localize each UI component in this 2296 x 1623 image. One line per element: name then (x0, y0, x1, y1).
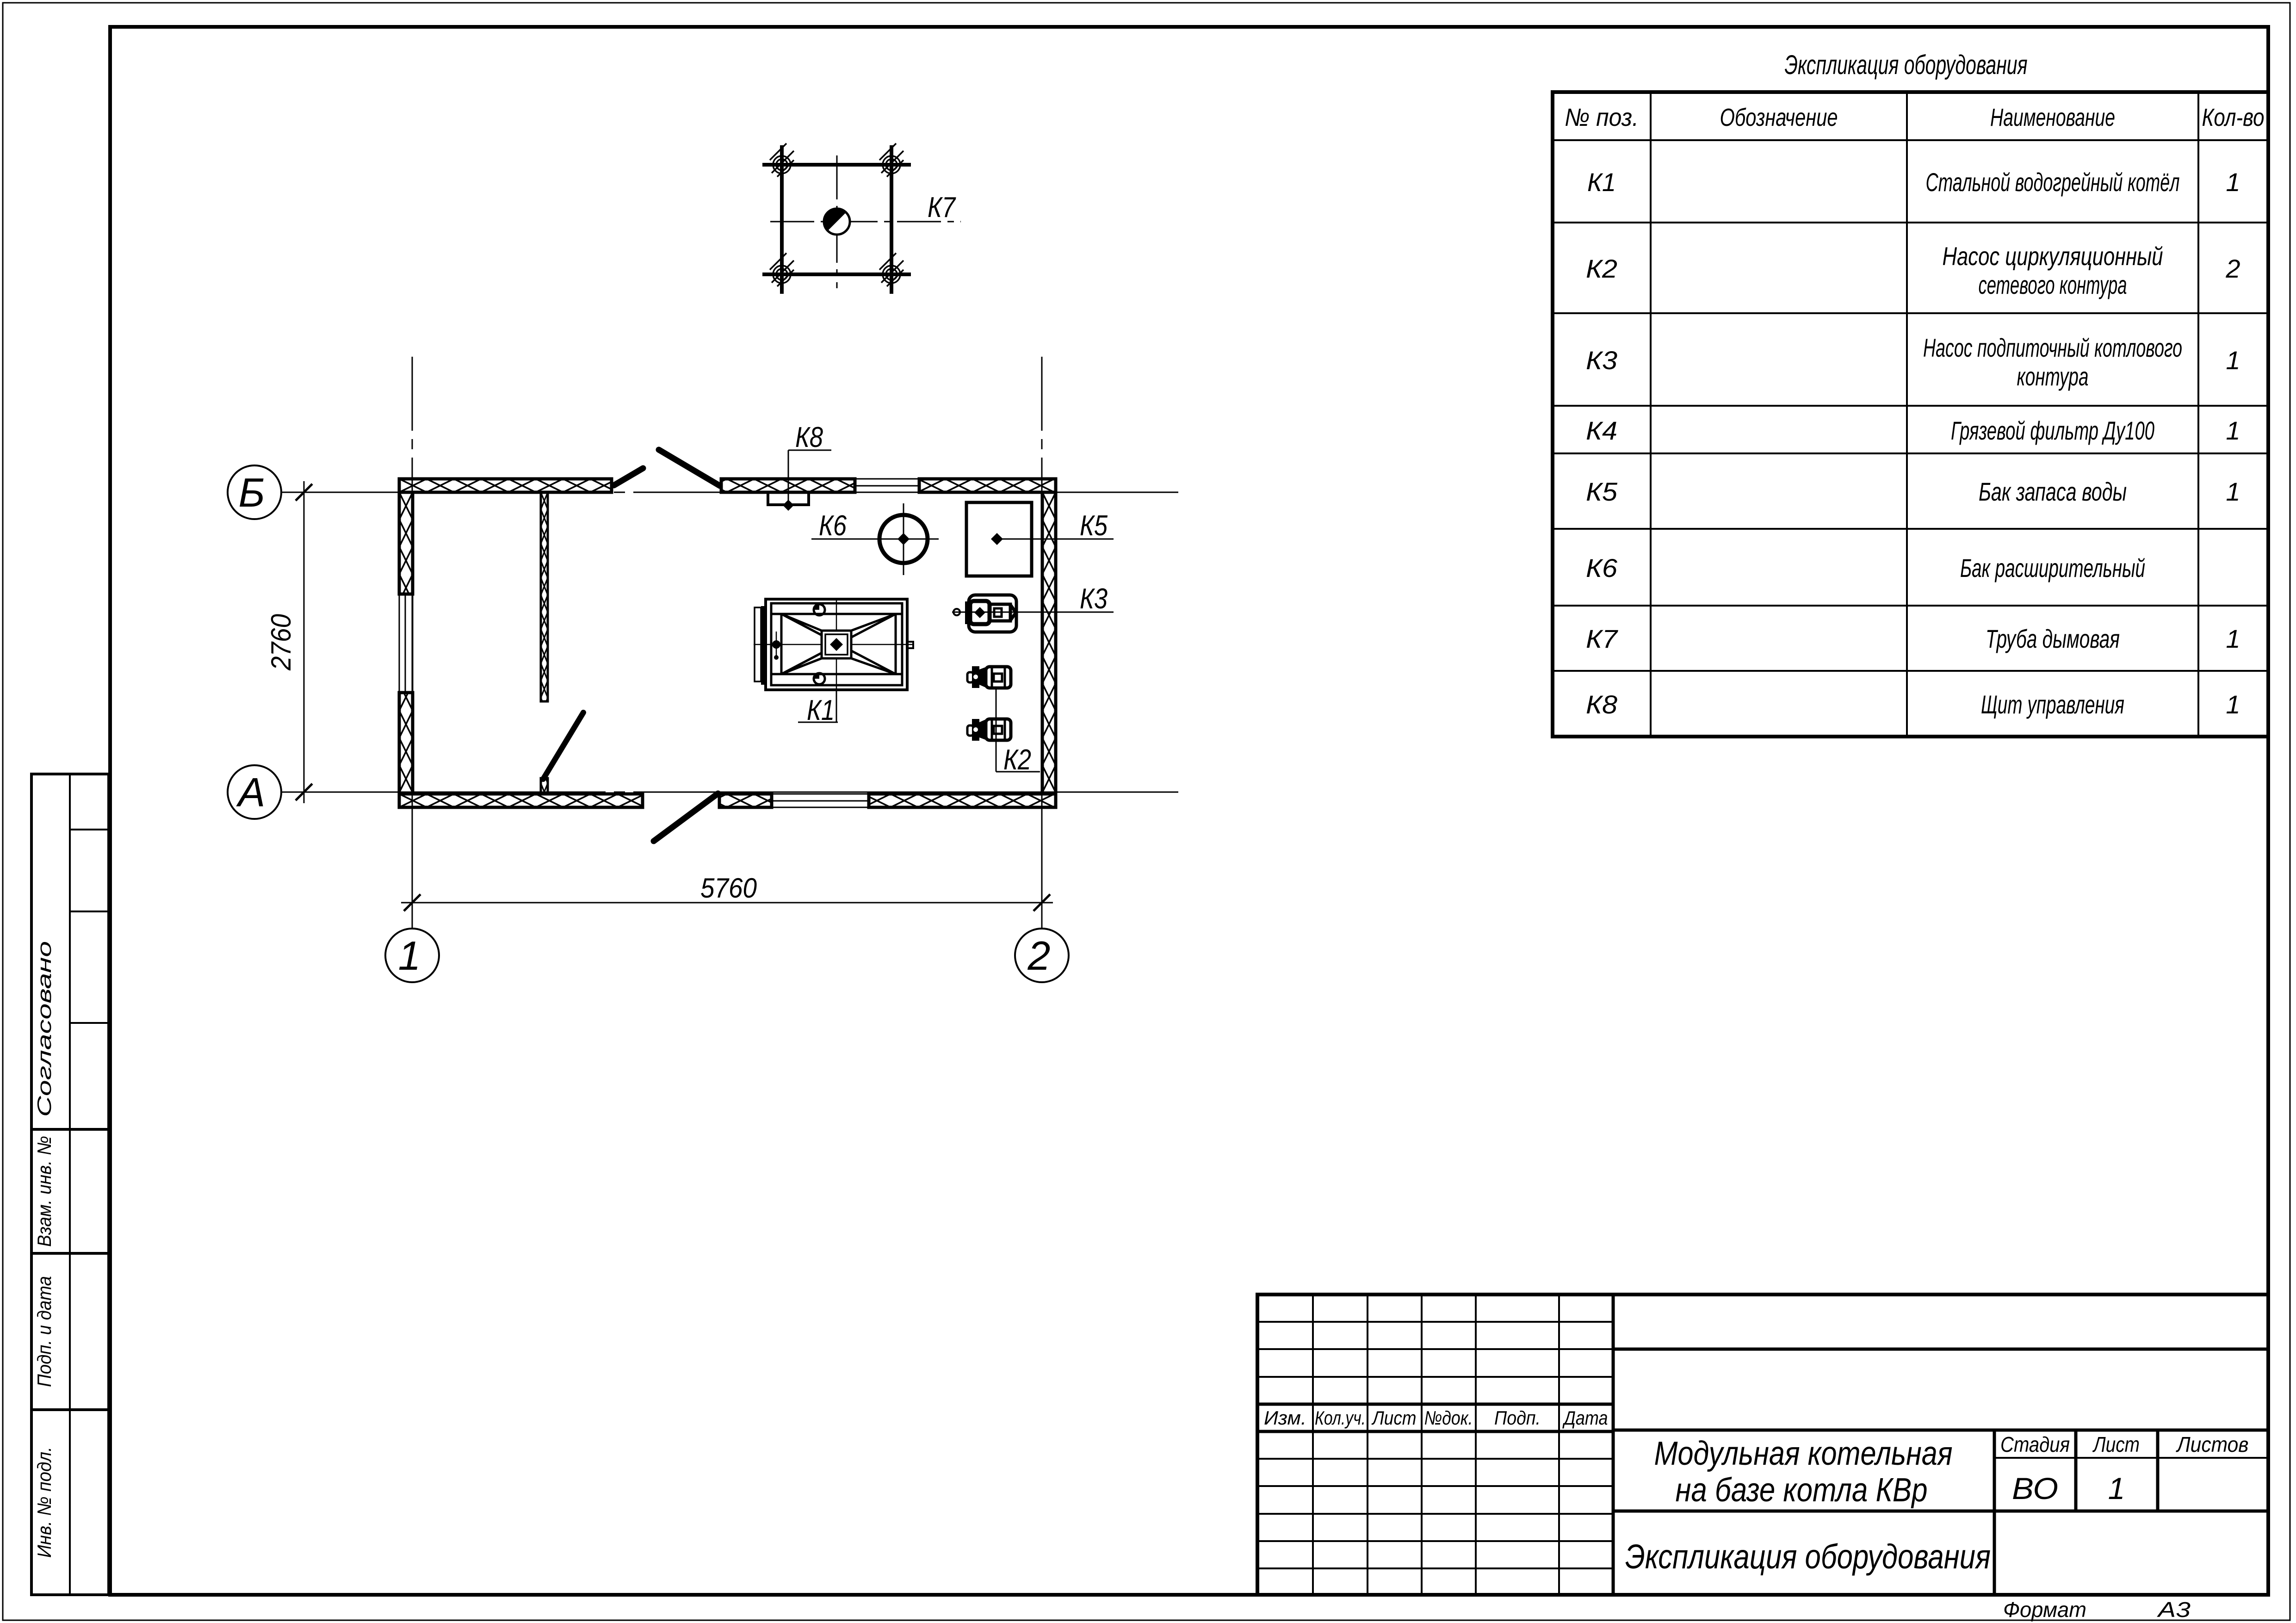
svg-text:1: 1 (2226, 167, 2240, 197)
svg-text:Экспликация оборудования: Экспликация оборудования (1625, 1537, 1991, 1576)
svg-text:К4: К4 (1586, 416, 1617, 445)
svg-text:К6: К6 (819, 510, 847, 542)
svg-text:1: 1 (2226, 346, 2240, 375)
svg-text:№ поз.: № поз. (1565, 104, 1639, 131)
svg-text:2760: 2760 (266, 614, 297, 671)
svg-text:Наименование: Наименование (1990, 104, 2115, 131)
svg-text:Экспликация оборудования: Экспликация оборудования (1785, 50, 2028, 80)
svg-text:Изм.: Изм. (1264, 1407, 1306, 1429)
svg-text:Бак запаса воды: Бак запаса воды (1979, 477, 2127, 506)
svg-text:Насос циркуляционный: Насос циркуляционный (1943, 242, 2163, 271)
svg-text:Модульная котельная: Модульная котельная (1654, 1435, 1953, 1472)
svg-text:Труба дымовая: Труба дымовая (1986, 624, 2120, 653)
svg-text:Подп. и дата: Подп. и дата (33, 1276, 55, 1387)
svg-text:ВО: ВО (2012, 1471, 2058, 1505)
svg-text:Б: Б (238, 470, 265, 515)
svg-text:К5: К5 (1080, 510, 1108, 542)
svg-text:2: 2 (1027, 933, 1051, 979)
svg-text:А3: А3 (2156, 1598, 2191, 1622)
svg-text:№док.: №док. (1424, 1407, 1473, 1429)
svg-text:1: 1 (2226, 690, 2240, 719)
svg-text:К6: К6 (1586, 553, 1618, 582)
svg-text:2: 2 (2225, 254, 2240, 283)
svg-text:Подп.: Подп. (1494, 1407, 1541, 1429)
svg-text:на базе котла КВр: на базе котла КВр (1676, 1472, 1928, 1509)
svg-text:К5: К5 (1586, 477, 1618, 506)
svg-text:Грязевой фильтр Ду100: Грязевой фильтр Ду100 (1951, 416, 2154, 445)
svg-text:А: А (236, 769, 266, 815)
svg-text:сетевого контура: сетевого контура (1979, 270, 2127, 299)
svg-text:К7: К7 (928, 192, 956, 223)
svg-text:Бак расширительный: Бак расширительный (1960, 553, 2145, 582)
svg-text:Стадия: Стадия (2000, 1432, 2070, 1456)
svg-text:контура: контура (2017, 362, 2089, 391)
svg-text:К3: К3 (1080, 583, 1108, 615)
svg-text:5760: 5760 (700, 873, 757, 904)
svg-text:1: 1 (2108, 1471, 2125, 1505)
svg-text:Дата: Дата (1562, 1407, 1608, 1429)
svg-text:1: 1 (2226, 416, 2240, 445)
svg-text:К1: К1 (1587, 167, 1616, 197)
svg-text:К2: К2 (1003, 744, 1031, 776)
svg-text:К8: К8 (795, 421, 823, 453)
svg-text:Лист: Лист (1371, 1407, 1417, 1429)
svg-text:Формат: Формат (2003, 1598, 2086, 1622)
svg-text:Стальной водогрейный котёл: Стальной водогрейный котёл (1926, 167, 2180, 197)
svg-text:К7: К7 (1586, 624, 1618, 653)
svg-text:Согласовано: Согласовано (33, 941, 55, 1117)
svg-text:К2: К2 (1586, 254, 1617, 283)
svg-text:К8: К8 (1586, 690, 1617, 719)
svg-text:Взам. инв. №: Взам. инв. № (33, 1136, 55, 1247)
svg-text:Кол.уч.: Кол.уч. (1315, 1407, 1366, 1429)
svg-text:Насос подпиточный котлового: Насос подпиточный котлового (1923, 333, 2182, 362)
svg-text:Кол-во: Кол-во (2202, 104, 2265, 131)
svg-text:Лист: Лист (2092, 1432, 2140, 1456)
svg-text:Листов: Листов (2176, 1432, 2249, 1456)
svg-text:К1: К1 (807, 694, 835, 726)
svg-text:К3: К3 (1586, 346, 1617, 375)
svg-text:1: 1 (2226, 477, 2240, 506)
svg-text:Инв. № подл.: Инв. № подл. (33, 1447, 55, 1558)
svg-text:Щит управления: Щит управления (1981, 690, 2124, 719)
svg-text:Обозначение: Обозначение (1720, 104, 1838, 131)
svg-text:1: 1 (398, 933, 421, 979)
svg-text:1: 1 (2226, 624, 2240, 653)
